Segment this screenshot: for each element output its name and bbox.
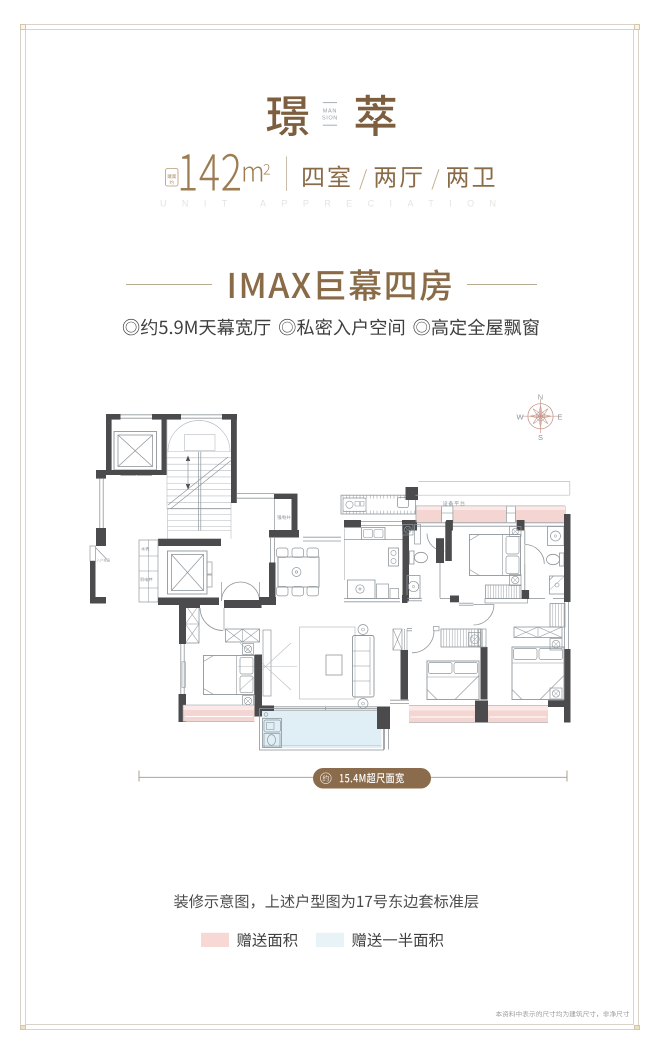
svg-text:UNIT APPRECIATION: UNIT APPRECIATION [160, 199, 496, 209]
svg-text:E: E [557, 412, 562, 421]
svg-text:MAN: MAN [323, 109, 337, 115]
svg-text:SION: SION [322, 116, 338, 122]
svg-text:S: S [538, 433, 543, 442]
svg-text:N: N [538, 393, 543, 402]
svg-text:W: W [516, 412, 524, 421]
